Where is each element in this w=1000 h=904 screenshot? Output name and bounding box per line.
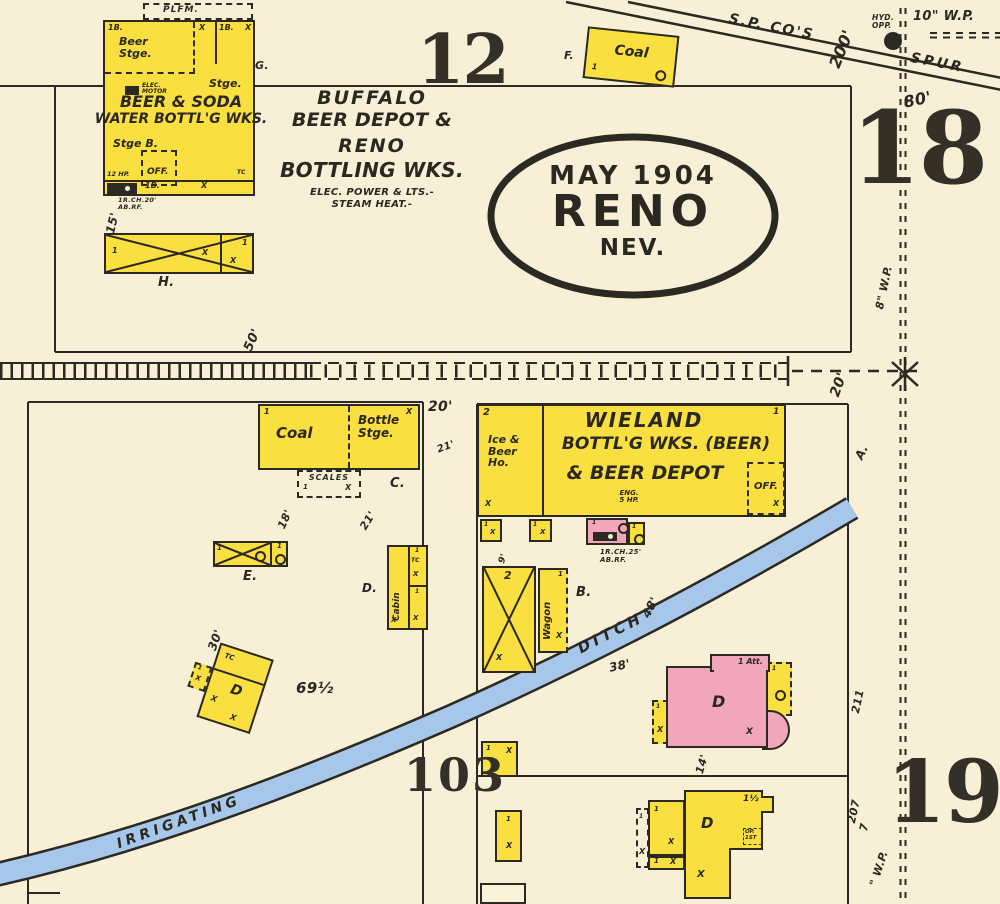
stories-2: 2 [504, 570, 512, 582]
x-mark: X [413, 571, 418, 578]
dim-20ft-street: 20' [428, 400, 453, 415]
stories-1: 1 [415, 548, 419, 554]
stories-1: 1 [654, 858, 659, 865]
x-mark: X [670, 858, 676, 866]
x-mark: X [657, 726, 663, 734]
power-house: 1 [586, 518, 628, 545]
scales-label: SCALES [299, 474, 359, 482]
wieland-name-3: & BEER DEPOT [545, 464, 745, 484]
x-mark: X [406, 408, 412, 416]
ref-h: H. [158, 276, 174, 290]
partial-building [480, 883, 526, 904]
ref-g: G. [255, 60, 269, 72]
ref-f: F. [564, 50, 574, 62]
boiler-dot [125, 186, 130, 191]
coal-label: Coal [587, 40, 676, 64]
coal-shed-f: Coal 1 [583, 26, 680, 87]
stories-1: 1 [773, 408, 779, 417]
bottom-wing-line [105, 180, 253, 182]
stories-1: 1 [277, 543, 282, 550]
x-mark: X [202, 249, 208, 257]
stories-1: 1 [217, 545, 222, 552]
stories-1b: 1B. [219, 24, 234, 32]
open-porch-label: OP. 1ST [745, 830, 757, 842]
stories-1half: 1½ [743, 795, 759, 804]
dwelling-mark: D [228, 682, 244, 700]
depot-note-2: STEAM HEAT.- [262, 200, 482, 211]
small-shed: 1 X [529, 519, 552, 542]
wieland-name-1: WIELAND [549, 410, 739, 431]
ref-b: B. [576, 586, 591, 600]
small-shed: 1 X [495, 810, 522, 862]
storage-b-label: Stge B. [113, 138, 158, 150]
power-house-annex: 1 [628, 522, 645, 545]
x-mark: X [230, 257, 236, 265]
stories-1: 1 [197, 665, 203, 672]
stories-1: 1 [303, 484, 308, 491]
ref-e: E. [243, 570, 257, 584]
x-mark: X [194, 675, 201, 684]
boiler-dot [608, 534, 613, 539]
beer-storage-room: 1B. Beer Stge. [105, 22, 195, 74]
stories-2: 2 [483, 408, 490, 419]
small-shed: 1 X [480, 519, 502, 542]
wieland-name-2: BOTTL'G WKS. (BEER) [547, 436, 785, 454]
ice-beer-house-label: Ice & Beer Ho. [488, 434, 520, 469]
stories-1: 1 [112, 247, 118, 255]
coal-yard-label: Coal [276, 426, 313, 442]
window-circle [655, 70, 667, 82]
wagon-label: Wagon [543, 582, 554, 640]
x-mark: X [697, 870, 705, 881]
depot-note-1: ELEC. POWER & LTS.- [262, 188, 482, 199]
beer-storage-label: Beer Stge. [119, 36, 152, 59]
wagon-shed: 1 Wagon X [538, 568, 568, 653]
beer-soda-bottling-works-building: 1B. Beer Stge. X 1B. X Stge. ELEC. MOTOR… [103, 20, 255, 196]
dwelling-strip: 1 X [648, 856, 685, 870]
x-mark: X [668, 838, 674, 846]
stories-1: 1 [415, 589, 419, 595]
x-mark: X [639, 848, 645, 856]
partition-line [215, 22, 217, 64]
dwelling-mark: D [701, 816, 713, 832]
tc-mark: TC [223, 653, 235, 663]
engine-label: ENG. 5 HP. [599, 490, 659, 505]
wieland-bottling-works-building: 2 Ice & Beer Ho. X WIELAND BOTTL'G WKS. … [477, 404, 786, 517]
sanborn-map-reno-1904: 12 18 19 103 MAY 1904 RENO NEV. S.P. CO'… [0, 0, 1000, 904]
dwelling-mark: D [712, 694, 725, 711]
stories-1: 1 [264, 408, 270, 416]
x-mark: X [506, 747, 512, 755]
depot-name-1: BUFFALO [262, 88, 482, 109]
storage-label: Stge. [209, 78, 242, 90]
stories-1b: 1B. [108, 24, 123, 32]
boiler-symbol [107, 183, 137, 194]
depot-name-4: BOTTLING WKS. [262, 160, 482, 182]
hydrant-note: HYD. OPP. [872, 14, 894, 30]
x-mark: X [229, 713, 237, 723]
warehouse-h-building: 1 X 1 X [104, 233, 254, 274]
dwelling-wing: 1 X [648, 800, 685, 856]
works-name-line2: WATER BOTTL'G WKS. [81, 112, 281, 127]
window-circle [275, 554, 286, 565]
fire-hydrant-dot [884, 32, 902, 50]
boiler-symbol [593, 532, 617, 541]
stories-1: 1 [558, 571, 563, 578]
stories-1: 1 [484, 522, 488, 528]
stories-1: 1 [654, 806, 659, 813]
tc-mark: TC [237, 170, 246, 176]
stories-1: 1 [533, 522, 537, 528]
stories-1: 1 [772, 666, 776, 672]
tc-mark: TC [411, 558, 420, 564]
stories-1: 1 [632, 524, 636, 530]
coal-bottle-storage-building: Coal Bottle Stge. 1 X [258, 404, 420, 470]
block-number-12: 12 [417, 26, 508, 94]
office-label: OFF. [147, 168, 168, 177]
pink-dwelling-group: 1 X 1 1 Att. D X [652, 654, 794, 750]
dwelling-se-group: 1 X 1 X 1 X 1½ D OP. 1ST X [633, 786, 778, 904]
open-porch-room: OP. 1ST [743, 828, 762, 845]
block-number-19: 19 [886, 750, 1000, 836]
cross-brace [106, 235, 252, 272]
shed-2-building: 2 X [482, 566, 536, 673]
x-mark: X [490, 529, 495, 536]
stories-1: 1 [656, 704, 660, 710]
bottle-storage-label: Bottle Stge. [358, 414, 399, 439]
x-mark: X [496, 654, 502, 662]
wieland-office-room: OFF. [747, 462, 785, 515]
stories-1: 1 [506, 816, 511, 823]
window-circle [255, 551, 266, 562]
x-mark: X [556, 632, 562, 640]
depot-name-3: RENO [262, 136, 482, 157]
x-mark: X [413, 615, 418, 622]
cross-brace [484, 568, 534, 671]
window-circle [634, 534, 645, 545]
survey-star [892, 357, 918, 391]
x-mark: X [245, 24, 251, 32]
stories-1: 1 [639, 814, 643, 820]
stories-1: 1 [591, 63, 597, 72]
shed-e-building: 1 1 [213, 541, 288, 567]
office-label: OFF. [754, 482, 778, 493]
stories-1: 1 [592, 520, 596, 526]
x-mark: X [391, 617, 396, 624]
platform-outline: PLFM. [143, 3, 253, 20]
horsepower-label: 12 HP. [107, 171, 129, 178]
cabin-building: Cabin 1 TC X 1 X X [387, 545, 428, 630]
x-mark: X [209, 694, 217, 704]
ref-d: D. [362, 582, 377, 595]
stories-1b: 1B. [145, 182, 160, 190]
x-mark: X [540, 529, 545, 536]
scales-platform: SCALES 1 X [297, 470, 361, 498]
dwelling-69-main: TC D X X [196, 643, 273, 734]
title-city: RENO [488, 188, 778, 236]
x-mark: X [746, 728, 753, 737]
depot-name-2: BEER DEPOT & [262, 110, 482, 131]
x-mark: X [506, 842, 512, 850]
porch: 1 X [636, 808, 649, 868]
block-number-18: 18 [851, 98, 986, 198]
street-number-103: 103 [404, 752, 506, 798]
x-mark: X [199, 24, 205, 32]
works-name-line1: BEER & SODA [91, 94, 271, 111]
cabin-label: Cabin [393, 561, 402, 621]
x-mark: X [773, 500, 779, 508]
stories-1: 1 [242, 239, 248, 247]
x-mark: X [345, 484, 351, 492]
house-number-69: 69½ [296, 680, 333, 696]
ref-c: C. [390, 477, 405, 491]
attic-label: 1 Att. [738, 658, 763, 666]
chimney-note-nw: 1R.CH.20' AB.RF. [118, 197, 157, 211]
window-circle [775, 690, 786, 701]
platform-label: PLFM. [163, 6, 199, 15]
x-mark: X [201, 182, 207, 190]
x-mark: X [485, 500, 491, 508]
water-pipe-10in-label: 10" W.P. [913, 10, 974, 24]
chimney-note-wieland: 1R.CH.25' AB.RF. [600, 549, 641, 564]
title-state: NEV. [488, 236, 778, 261]
water-pipe-10in-line [930, 33, 1000, 38]
